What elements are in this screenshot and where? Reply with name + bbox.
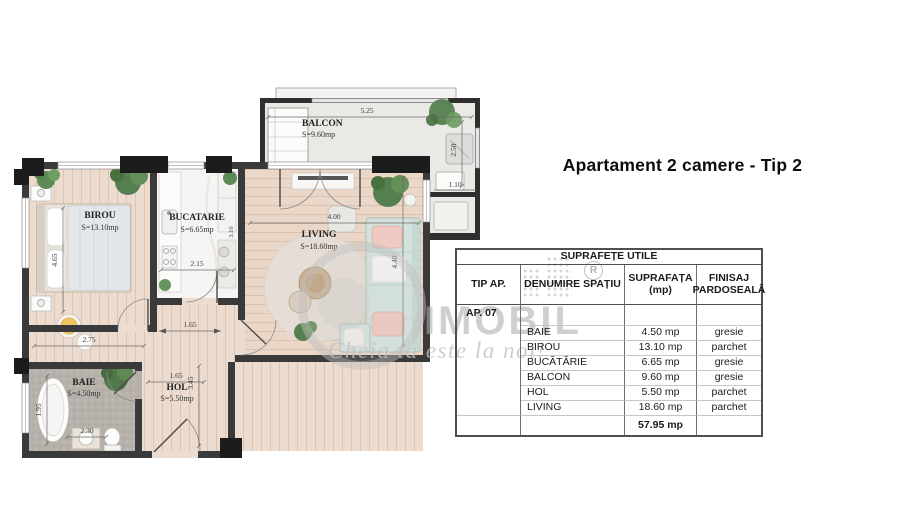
page-title: Apartament 2 camere - Tip 2 xyxy=(540,155,825,176)
floor-lamp xyxy=(404,194,416,206)
row-baie-name: BAIE xyxy=(521,325,625,340)
col-header-suprafata-line1: SUPRAFAȚA xyxy=(628,273,692,285)
label-living: LIVING xyxy=(302,230,337,240)
dim-balcon-depth: 2.50 xyxy=(449,143,458,156)
row-bucatarie-finish: gresie xyxy=(697,355,761,370)
row-bucatarie-area: 6.65 mp xyxy=(625,355,697,370)
plant xyxy=(159,279,171,291)
stool xyxy=(219,247,229,257)
areas-table: SUPRAFEȚE UTILE TIP AP. DENUMIRE SPAȚIU … xyxy=(455,248,763,437)
dim-bucatarie-depth: 3.10 xyxy=(228,226,235,237)
row-balcon-finish: gresie xyxy=(697,370,761,385)
cell-blank xyxy=(457,385,521,400)
cell-blank xyxy=(697,305,761,325)
row-baie-finish: gresie xyxy=(697,325,761,340)
tv xyxy=(298,176,348,180)
table-title: SUPRAFEȚE UTILE xyxy=(457,250,761,265)
plant xyxy=(223,171,237,185)
dim-living-width: 4.00 xyxy=(327,212,340,221)
col-header-tip-label: TIP AP. xyxy=(471,279,506,291)
row-birou-name: BIROU xyxy=(521,340,625,355)
label-baie-area: S=4.50mp xyxy=(67,389,100,398)
balcony-inner-wall xyxy=(430,192,480,197)
row-hol-finish: parchet xyxy=(697,385,761,400)
balcony-glass-rail xyxy=(312,99,448,103)
row-bucatarie-name: BUCĂTĂRIE xyxy=(521,355,625,370)
cell-blank xyxy=(457,325,521,340)
dim-birou-width: 2.75 xyxy=(82,335,95,344)
cell-blank xyxy=(457,355,521,370)
row-hol-name: HOL xyxy=(521,385,625,400)
col-header-finisaj-line2: PARDOSEALĂ xyxy=(693,285,766,297)
cell-blank xyxy=(697,415,761,435)
row-baie-area: 4.50 mp xyxy=(625,325,697,340)
col-header-finisaj-line1: FINISAJ xyxy=(709,273,749,285)
cell-blank xyxy=(457,370,521,385)
row-living-finish: parchet xyxy=(697,400,761,415)
dim-corridor-opening: 1.65 xyxy=(183,320,196,329)
row-balcon-area: 9.60 mp xyxy=(625,370,697,385)
apartment-id: AP. 07 xyxy=(457,305,521,325)
dim-balcon-niche: 1.10 xyxy=(448,180,461,189)
cell-blank xyxy=(457,340,521,355)
watermark-logo-inner xyxy=(318,278,370,330)
page: { "title": "Apartament 2 camere - Tip 2"… xyxy=(0,0,900,517)
cell-blank xyxy=(457,415,521,435)
dim-balcon-width: 5.25 xyxy=(360,106,373,115)
dim-baie-width: 2.30 xyxy=(80,426,93,435)
label-balcon: BALCON xyxy=(302,119,343,129)
row-balcon-name: BALCON xyxy=(521,370,625,385)
dim-bucatarie-width: 2.15 xyxy=(190,259,203,268)
col-header-denumire: DENUMIRE SPAȚIU xyxy=(521,265,625,305)
label-baie: BAIE xyxy=(72,378,95,388)
cell-blank xyxy=(521,415,625,435)
row-birou-area: 13.10 mp xyxy=(625,340,697,355)
row-hol-area: 5.50 mp xyxy=(625,385,697,400)
dim-hol-width: 1.65 xyxy=(169,371,182,380)
total-area: 57.95 mp xyxy=(625,415,697,435)
label-birou: BIROU xyxy=(84,211,115,221)
tv-console xyxy=(292,173,354,189)
label-hol-area: S=5.50mp xyxy=(160,394,193,403)
cell-blank xyxy=(625,305,697,325)
cell-blank xyxy=(457,400,521,415)
balcony-seat xyxy=(434,202,468,230)
label-balcon-area: S=9.60mp xyxy=(302,130,335,139)
col-header-denumire-label: DENUMIRE SPAȚIU xyxy=(524,279,621,291)
dim-baie-depth: 1.95 xyxy=(34,403,43,416)
label-birou-area: S=13.10mp xyxy=(81,223,118,232)
label-bucatarie-area: S=6.65mp xyxy=(180,225,213,234)
stool xyxy=(219,267,229,277)
col-header-suprafata-line2: (mp) xyxy=(649,285,672,297)
row-living-area: 18.60 mp xyxy=(625,400,697,415)
kitchen-table xyxy=(218,240,236,288)
cell-blank xyxy=(521,305,625,325)
row-living-name: LIVING xyxy=(521,400,625,415)
pillow xyxy=(47,208,65,246)
row-birou-finish: parchet xyxy=(697,340,761,355)
label-hol: HOL xyxy=(166,383,187,393)
dim-birou-depth: 4.65 xyxy=(50,253,59,266)
col-header-suprafata: SUPRAFAȚA (mp) xyxy=(625,265,697,305)
col-header-tip: TIP AP. xyxy=(457,265,521,305)
label-bucatarie: BUCATARIE xyxy=(169,213,225,223)
col-header-finisaj: FINISAJ PARDOSEALĂ xyxy=(697,265,761,305)
